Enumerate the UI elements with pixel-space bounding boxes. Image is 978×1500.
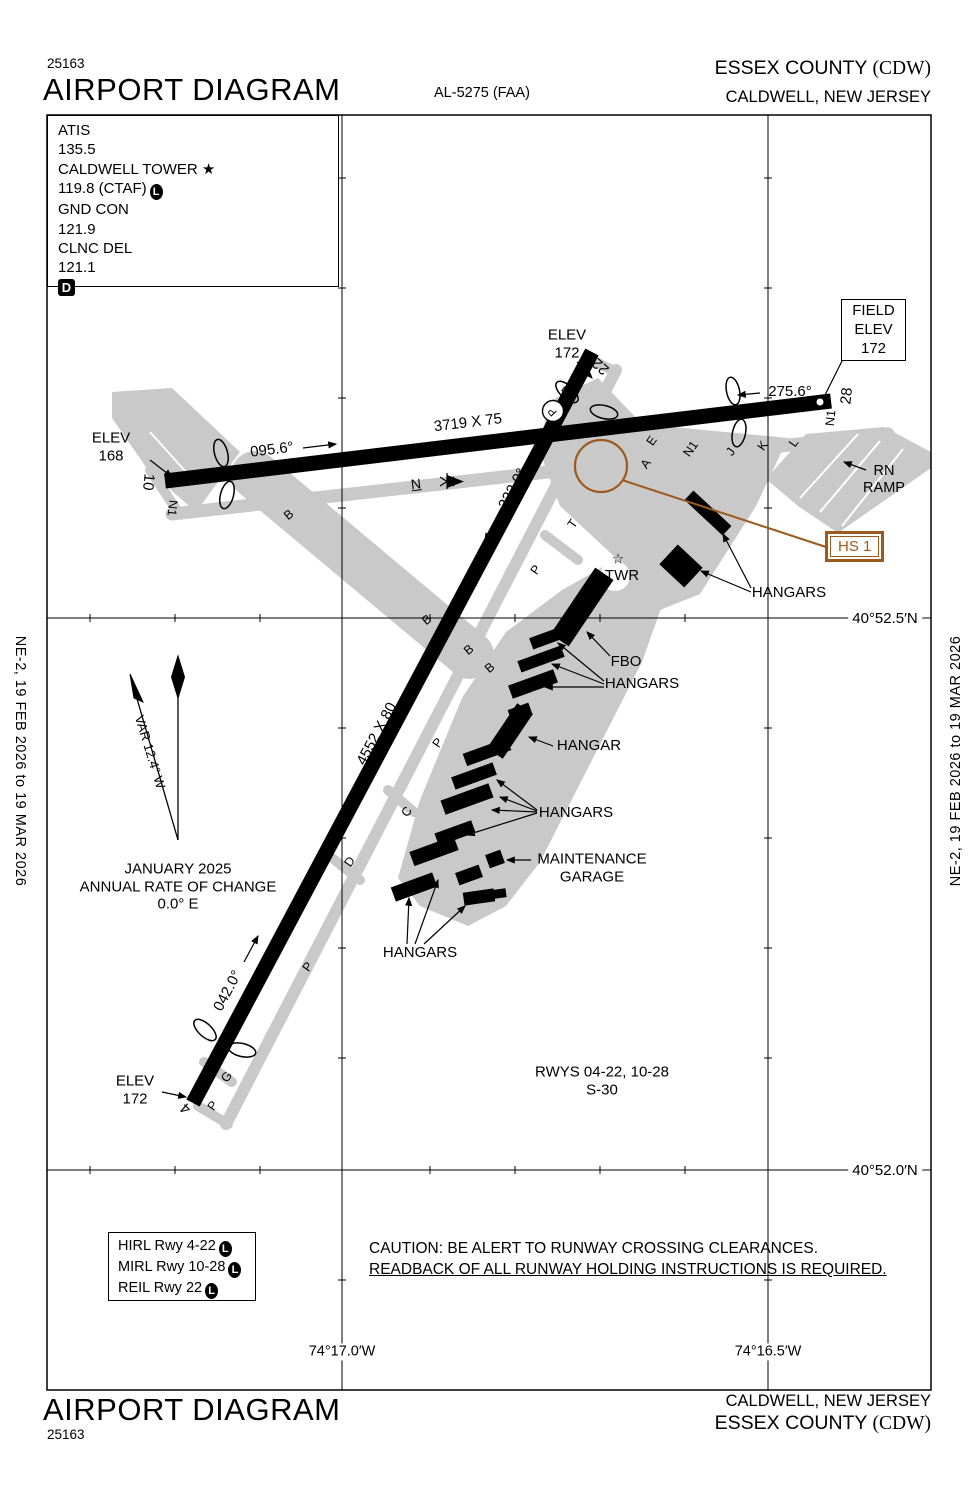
page-title-top: AIRPORT DIAGRAM — [43, 72, 340, 108]
edition-text-right: NE-2, 19 FEB 2026 to 19 MAR 2026 — [948, 561, 964, 961]
comm-line: CALDWELL TOWER ★ — [58, 160, 338, 179]
comm-line: GND CON — [58, 200, 338, 219]
chart-number-top: 25163 — [47, 56, 85, 71]
al-number: AL-5275 (FAA) — [434, 85, 530, 101]
chart-number-bottom: 25163 — [47, 1427, 85, 1442]
lighting-row: REIL Rwy 22L — [118, 1278, 255, 1299]
circled-p-symbol — [543, 401, 564, 422]
comm-line: ATIS — [58, 121, 338, 140]
lighting-row-text: MIRL Rwy 10-28 — [118, 1259, 225, 1275]
hotspot-hs1-box: HS 1 — [830, 536, 879, 557]
apron-polygons — [112, 378, 931, 926]
comm-line: 119.8 (CTAF)L — [58, 179, 338, 200]
field-elev-value: 172 — [842, 339, 905, 358]
runway-end-elevation-dot — [817, 399, 824, 406]
comm-line-text: 119.8 (CTAF) — [58, 180, 147, 197]
caution-note: CAUTION: BE ALERT TO RUNWAY CROSSING CLE… — [369, 1238, 887, 1280]
lighted-symbol-icon: L — [228, 1262, 241, 1278]
caution-line-2: READBACK OF ALL RUNWAY HOLDING INSTRUCTI… — [369, 1259, 887, 1280]
edition-text-left: NE-2, 19 FEB 2026 to 19 MAR 2026 — [12, 561, 28, 961]
lighting-row: HIRL Rwy 4-22L — [118, 1236, 255, 1257]
comm-line: 121.9 — [58, 220, 338, 239]
comm-frequency-box: ATIS 135.5 CALDWELL TOWER ★ 119.8 (CTAF)… — [47, 115, 339, 287]
caution-line-1: CAUTION: BE ALERT TO RUNWAY CROSSING CLE… — [369, 1238, 887, 1259]
lighting-row-text: HIRL Rwy 4-22 — [118, 1238, 216, 1254]
airport-code-text: (CDW) — [873, 1413, 931, 1434]
lighted-symbol-icon: L — [219, 1241, 232, 1257]
airport-code-text: (CDW) — [873, 58, 931, 79]
comm-line: CLNC DEL — [58, 239, 338, 258]
field-elevation-box: FIELD ELEV 172 — [841, 299, 906, 361]
lighted-symbol-icon: L — [205, 1283, 218, 1299]
airport-name-top: ESSEX COUNTY (CDW) — [715, 57, 931, 80]
page-title-bottom: AIRPORT DIAGRAM — [43, 1392, 340, 1428]
airport-name-text: ESSEX COUNTY — [715, 1412, 873, 1434]
airport-diagram-page: 25163 AIRPORT DIAGRAM AL-5275 (FAA) ESSE… — [0, 0, 978, 1500]
north-arrow — [130, 656, 185, 840]
comm-line: 135.5 — [58, 140, 338, 159]
airport-name-text: ESSEX COUNTY — [715, 57, 873, 79]
comm-line: 121.1 — [58, 258, 338, 277]
atis-d-symbol-icon: D — [58, 279, 75, 296]
lighting-row-text: REIL Rwy 22 — [118, 1280, 202, 1296]
hangar-building — [494, 888, 507, 899]
field-elev-line: FIELD — [842, 301, 905, 320]
lighted-symbol-icon: L — [150, 184, 163, 200]
runway-lighting-box: HIRL Rwy 4-22L MIRL Rwy 10-28L REIL Rwy … — [108, 1232, 256, 1301]
lighting-row: MIRL Rwy 10-28L — [118, 1257, 255, 1278]
airport-city-bottom: CALDWELL, NEW JERSEY — [726, 1392, 931, 1411]
field-elev-line: ELEV — [842, 320, 905, 339]
airport-city-top: CALDWELL, NEW JERSEY — [726, 88, 931, 107]
airport-name-bottom: ESSEX COUNTY (CDW) — [715, 1412, 931, 1435]
